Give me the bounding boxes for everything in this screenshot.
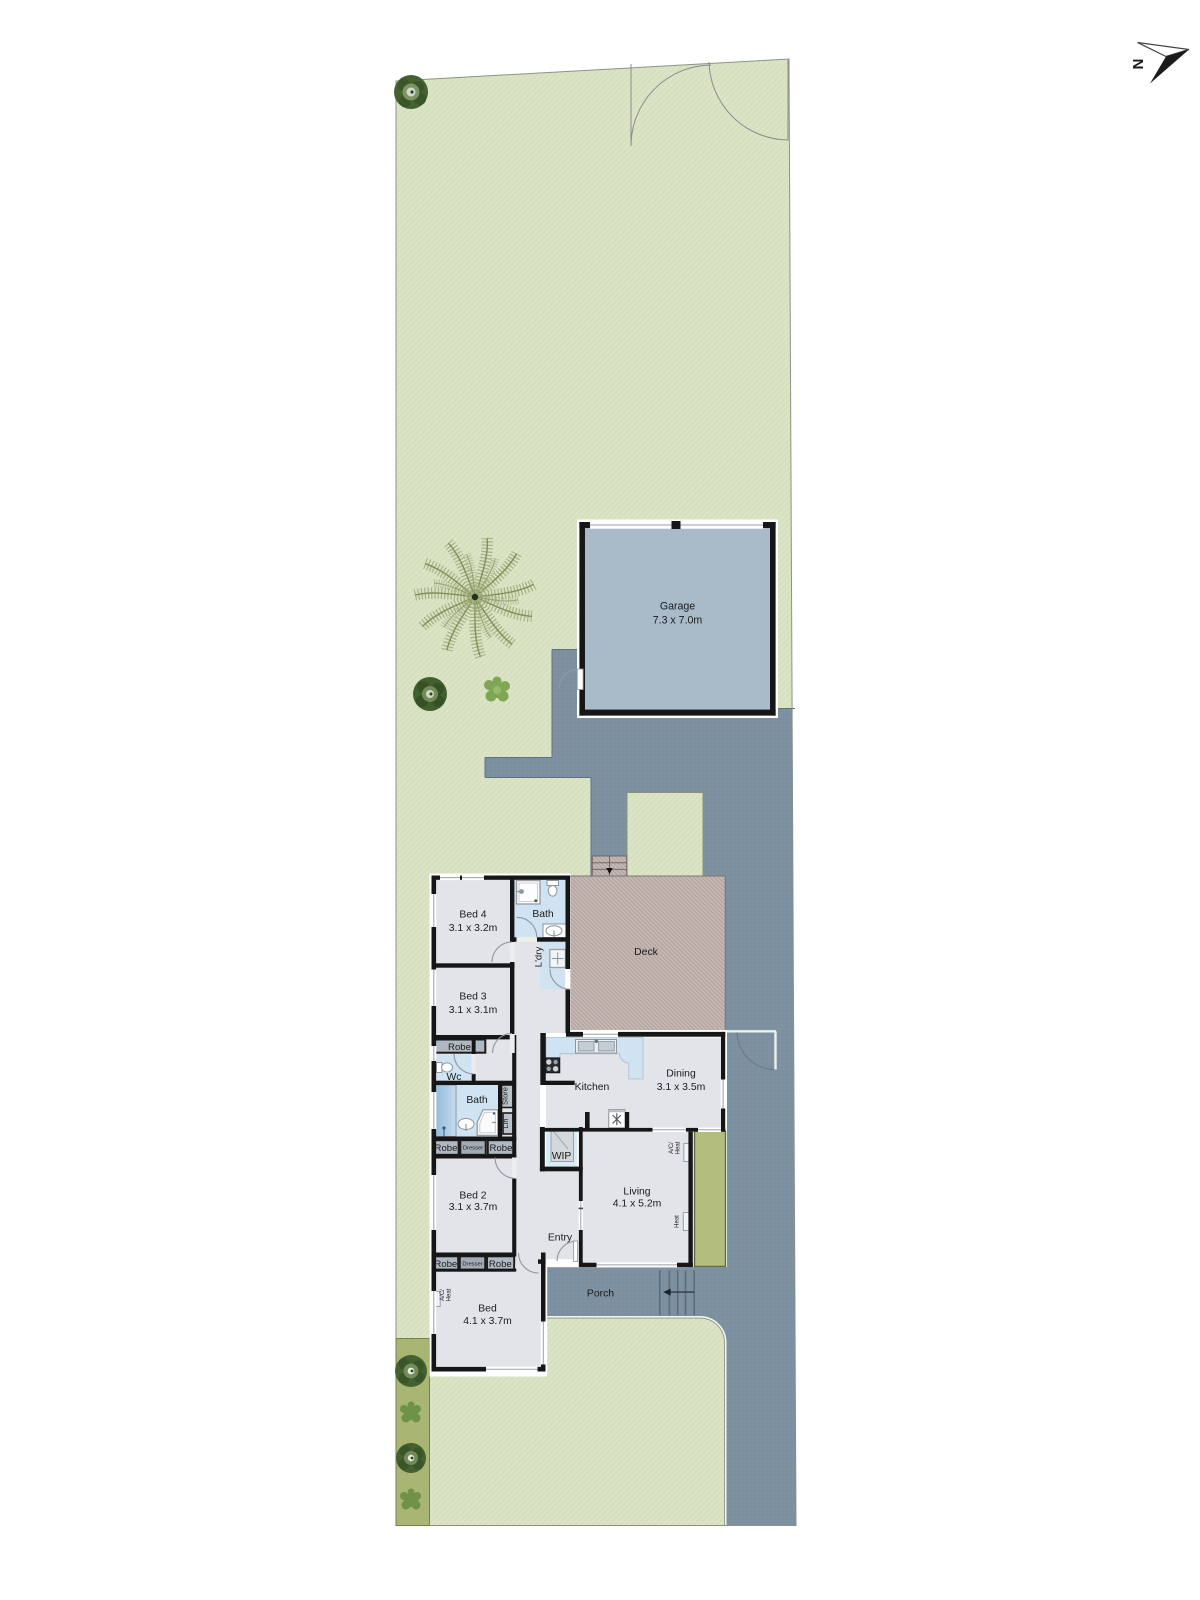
svg-text:Porch: Porch <box>587 1289 614 1300</box>
svg-text:7.3 x 7.0m: 7.3 x 7.0m <box>653 615 703 627</box>
svg-text:Heat: Heat <box>447 1288 453 1301</box>
svg-text:Store: Store <box>501 1087 510 1105</box>
svg-text:A/C/: A/C/ <box>440 1289 446 1301</box>
svg-text:Kitchen: Kitchen <box>575 1082 610 1093</box>
svg-text:Deck: Deck <box>634 947 658 958</box>
svg-text:Entry: Entry <box>548 1233 573 1244</box>
svg-text:3.1 x 3.1m: 3.1 x 3.1m <box>449 1005 498 1016</box>
svg-text:Wc: Wc <box>446 1072 461 1083</box>
svg-text:Robe: Robe <box>448 1042 471 1053</box>
svg-text:Bath: Bath <box>466 1095 488 1106</box>
svg-text:Bed: Bed <box>478 1304 497 1315</box>
svg-text:Heat: Heat <box>676 1141 682 1154</box>
svg-text:Lin: Lin <box>501 1118 510 1128</box>
svg-text:Dresser: Dresser <box>463 1146 483 1152</box>
svg-text:4.1 x 5.2m: 4.1 x 5.2m <box>613 1199 662 1210</box>
svg-text:Dresser: Dresser <box>462 1262 482 1268</box>
svg-text:A/C/: A/C/ <box>669 1142 675 1154</box>
svg-text:Heat: Heat <box>675 1215 681 1228</box>
svg-text:L'dry: L'dry <box>534 947 545 968</box>
svg-text:3.1 x 3.2m: 3.1 x 3.2m <box>449 923 498 934</box>
svg-text:Dining: Dining <box>666 1069 696 1080</box>
svg-text:Living: Living <box>623 1187 650 1198</box>
svg-text:4.1 x 3.7m: 4.1 x 3.7m <box>463 1316 512 1327</box>
svg-text:Bed 2: Bed 2 <box>459 1191 486 1202</box>
svg-text:Robe: Robe <box>490 1143 513 1154</box>
svg-text:Garage: Garage <box>660 601 695 613</box>
svg-text:WIP: WIP <box>552 1151 572 1162</box>
svg-text:Robe: Robe <box>489 1259 512 1270</box>
svg-text:Bed 3: Bed 3 <box>459 992 486 1003</box>
svg-text:3.1 x 3.5m: 3.1 x 3.5m <box>657 1082 706 1093</box>
svg-text:N: N <box>1129 59 1146 70</box>
svg-text:3.1 x 3.7m: 3.1 x 3.7m <box>449 1202 498 1213</box>
svg-text:Robe: Robe <box>434 1259 457 1270</box>
svg-text:Robe: Robe <box>435 1143 458 1154</box>
svg-text:Bath: Bath <box>532 909 554 920</box>
svg-text:Bed 4: Bed 4 <box>459 910 486 921</box>
